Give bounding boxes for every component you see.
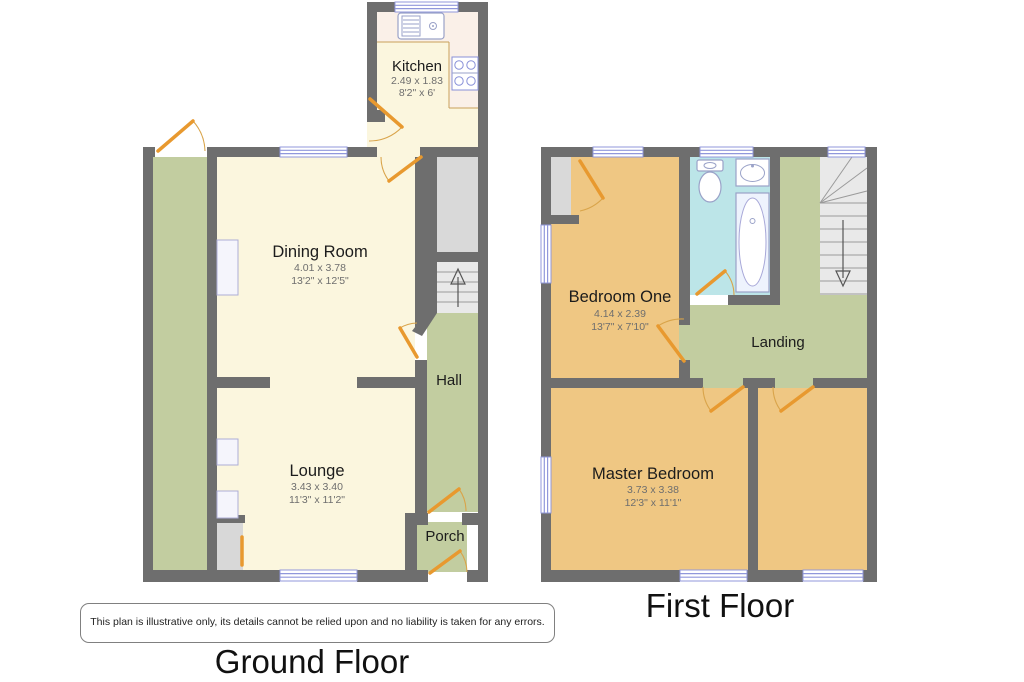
ground-floor-plan: Kitchen 2.49 x 1.83 8'2" x 6' Dining Roo…: [143, 2, 488, 680]
lounge-recess: [217, 491, 238, 518]
storage-room: [437, 157, 478, 252]
floor-title-first: First Floor: [646, 587, 795, 624]
room-dims-lounge-m: 3.43 x 3.40: [291, 481, 343, 493]
room-label-kitchen: Kitchen: [392, 58, 442, 75]
door: [158, 121, 205, 151]
room-dims-lounge-ft: 11'3" x 11'2": [289, 494, 345, 506]
window: [700, 147, 753, 157]
room-dining-lounge: [217, 157, 415, 570]
first-floor-plan: Bedroom One 4.14 x 2.39 13'7" x 7'10" La…: [541, 147, 877, 624]
room-label-dining: Dining Room: [272, 243, 367, 261]
room-dims-kitchen-m: 2.49 x 1.83: [391, 75, 443, 87]
room-dims-master-ft: 12'3" x 11'1": [625, 497, 682, 509]
room-landing: [820, 295, 867, 390]
lounge-recess: [217, 439, 238, 465]
toilet-icon: [697, 160, 723, 202]
window: [395, 2, 458, 12]
room-label-porch: Porch: [425, 528, 464, 545]
bathtub-icon: [736, 193, 769, 292]
basin-icon: [736, 159, 769, 186]
room-bedroom-two: [758, 388, 867, 570]
disclaimer-text: This plan is illustrative only, its deta…: [90, 615, 544, 631]
disclaimer-box: This plan is illustrative only, its deta…: [80, 603, 555, 643]
room-label-bedroom-one: Bedroom One: [569, 288, 672, 306]
floorplan-drawing: Kitchen 2.49 x 1.83 8'2" x 6' Dining Roo…: [0, 0, 1024, 682]
room-label-master: Master Bedroom: [592, 465, 714, 483]
room-dims-master-m: 3.73 x 3.38: [627, 484, 679, 496]
window: [541, 225, 551, 283]
room-dims-dining-ft: 13'2" x 12'5": [291, 275, 349, 287]
room-dims-kitchen-ft: 8'2" x 6': [399, 87, 435, 99]
window: [680, 570, 747, 581]
room-label-lounge: Lounge: [289, 462, 344, 480]
dining-recess: [217, 240, 238, 295]
room-label-hall: Hall: [436, 372, 462, 389]
window: [803, 570, 863, 581]
room-landing: [780, 157, 820, 390]
room-dims-bedroom-one-ft: 13'7" x 7'10": [591, 321, 649, 333]
room-dims-bedroom-one-m: 4.14 x 2.39: [594, 308, 646, 320]
window: [541, 457, 551, 513]
lounge-cupboard: [217, 523, 243, 570]
floor-title-ground: Ground Floor: [215, 643, 409, 680]
room-side-passage: [152, 157, 207, 570]
room-dims-dining-m: 4.01 x 3.78: [294, 262, 346, 274]
room-hall: [427, 313, 478, 512]
window: [828, 147, 865, 157]
window: [593, 147, 643, 157]
hob-icon: [452, 57, 478, 90]
window: [280, 147, 347, 157]
room-label-landing: Landing: [751, 334, 804, 351]
sink-icon: [398, 13, 444, 39]
floorplan-page: Kitchen 2.49 x 1.83 8'2" x 6' Dining Roo…: [0, 0, 1024, 682]
window: [280, 570, 357, 581]
bedroom-one-cupboard: [551, 157, 571, 215]
